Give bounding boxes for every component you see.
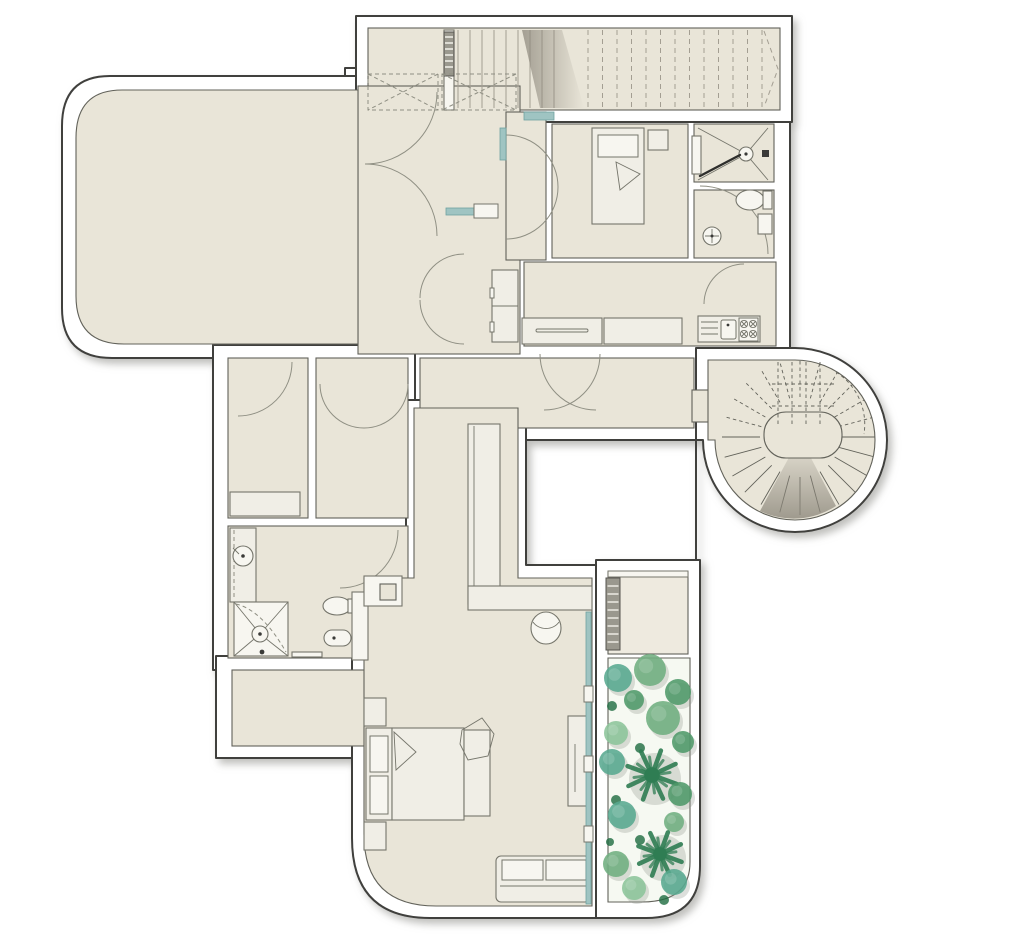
desk [468, 586, 592, 610]
dressing-room-floor [316, 358, 408, 518]
stair-hub [764, 412, 842, 458]
door-pocket [474, 204, 498, 218]
kitchen-sink [721, 320, 736, 339]
nightstand [648, 130, 668, 150]
garden-shrub-dot [607, 701, 617, 711]
kitchen-counter-left [522, 318, 602, 344]
threshold [292, 652, 322, 657]
wall-shelf [692, 136, 701, 174]
bench [464, 730, 490, 816]
basin-dot [711, 235, 714, 238]
wc-shelf [758, 214, 772, 234]
garage-floor [76, 90, 358, 344]
tall-cabinet [490, 270, 518, 342]
drain-dot [744, 152, 747, 155]
bidet-dot [332, 636, 335, 639]
kitchen-counter-mid [604, 318, 682, 344]
double-bed [366, 728, 464, 820]
niche [380, 584, 396, 600]
toilet-tank [763, 191, 772, 209]
bed-mattress [392, 728, 464, 820]
toilet [323, 597, 351, 615]
garden-shrub-dot [606, 838, 614, 846]
bidet [324, 630, 351, 646]
glass-door [524, 112, 554, 120]
glass-door [446, 208, 474, 215]
valve-mark [762, 150, 769, 157]
maid-corridor-floor [506, 112, 546, 260]
desk-chair [531, 612, 561, 644]
kitchen-stove [739, 318, 758, 341]
nightstand [364, 698, 386, 726]
floor-plan-canvas [0, 0, 1024, 935]
terrace-top-band [608, 571, 688, 577]
glass-panel [500, 128, 506, 160]
low-shelf [230, 492, 300, 516]
garden-shrub-dot [635, 835, 645, 845]
floor-plan-svg [0, 0, 1024, 935]
nightstand [364, 822, 386, 850]
hatch-ladder [444, 32, 454, 76]
garden-shrub-dot [659, 895, 669, 905]
ladder-rail [606, 578, 620, 650]
toilet [736, 190, 764, 210]
garden-ladder [606, 578, 620, 650]
sofa [496, 856, 590, 902]
sink-dot [727, 324, 730, 327]
bed-pillow [598, 135, 638, 157]
sink-dot [241, 554, 245, 558]
corridor-wardrobe [468, 424, 500, 604]
shower [234, 602, 288, 656]
